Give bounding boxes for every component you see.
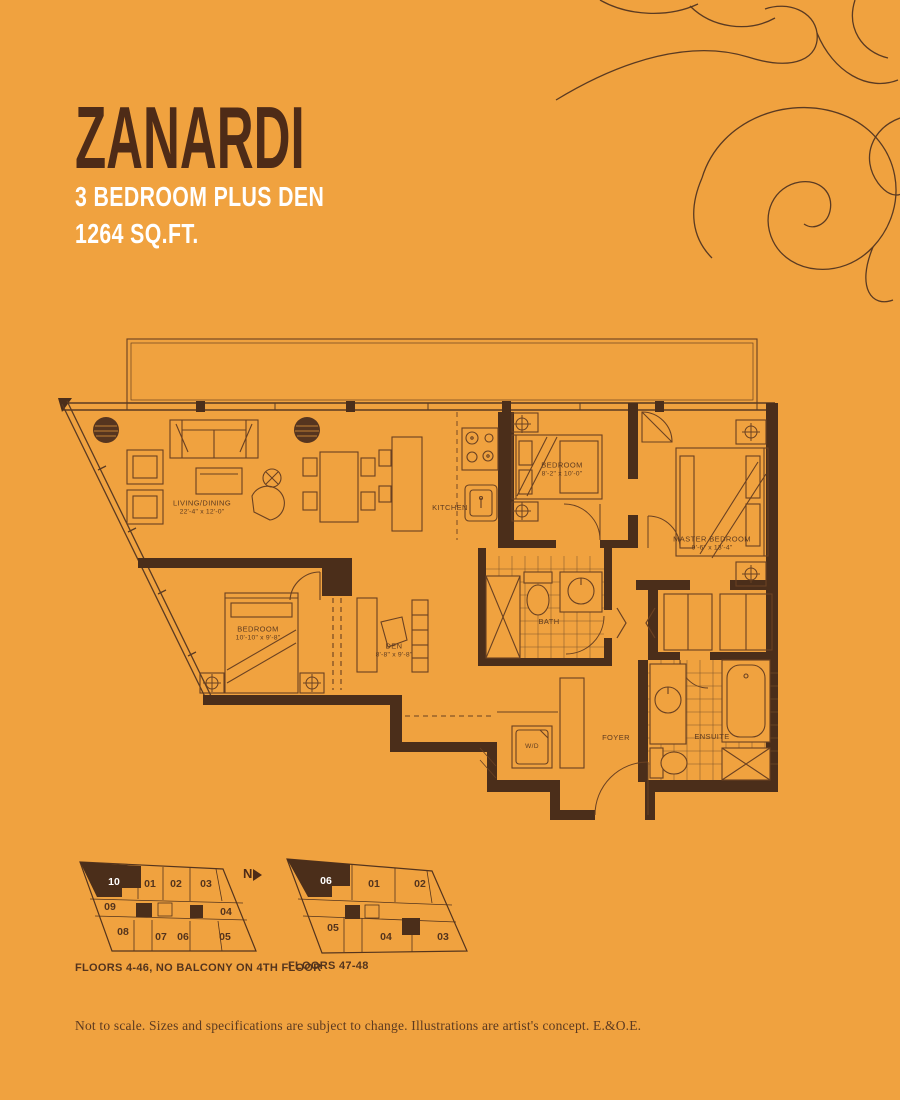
ornament-swirl-icon xyxy=(556,0,900,302)
room-label-bedroom2: BEDROOM8'-2" x 10'-0" xyxy=(541,461,583,480)
kitchen-island xyxy=(379,437,422,531)
room-label-foyer: FOYER xyxy=(602,733,630,743)
bath-sink-icon xyxy=(560,572,602,612)
keyplan1-unit-02: 02 xyxy=(170,878,182,890)
header: ZANARDI xyxy=(75,96,471,180)
closet-icon xyxy=(722,748,770,780)
keyplan1-unit-06: 06 xyxy=(177,931,189,943)
room-label-bath: BATH xyxy=(538,617,559,627)
room-label-master-bedroom: MASTER BEDROOM9'-6" x 13'-4" xyxy=(673,535,751,554)
keyplan1-unit-05: 05 xyxy=(219,931,231,943)
room-label-kitchen: KITCHEN xyxy=(432,503,468,513)
room-label-wd: W/D xyxy=(525,743,539,751)
keyplan-2-highlight xyxy=(287,859,350,897)
keyplan2-unit-05: 05 xyxy=(327,922,339,934)
keyplan2-unit-04: 04 xyxy=(380,931,392,943)
subtitle-sqft: 1264 SQ.FT. xyxy=(75,218,199,250)
keyplan2-unit-06: 06 xyxy=(320,875,332,887)
floorplan-page: ZANARDI 3 BEDROOM PLUS DEN 1264 SQ.FT. L… xyxy=(0,0,900,1100)
balcony xyxy=(127,339,757,403)
keyplan1-unit-08: 08 xyxy=(117,926,129,938)
kitchen-appliances xyxy=(457,412,498,540)
ensuite-room xyxy=(648,660,778,780)
accent-chair xyxy=(252,469,284,520)
disclaimer-text: Not to scale. Sizes and specifications a… xyxy=(75,1018,641,1034)
keyplan1-unit-10: 10 xyxy=(108,876,120,888)
keyplan1-caption: FLOORS 4-46, NO BALCONY ON 4TH FLOOR xyxy=(75,962,322,974)
keyplan2-unit-02: 02 xyxy=(414,878,426,890)
bath-room xyxy=(486,556,655,658)
north-indicator: N xyxy=(243,866,262,881)
keyplan2-caption: FLOORS 47-48 xyxy=(288,960,369,972)
keyplan2-unit-01: 01 xyxy=(368,878,380,890)
room-label-den: DEN8'-8" x 9'-8" xyxy=(376,642,413,661)
keyplan1-unit-09: 09 xyxy=(104,901,116,913)
room-label-bedroom3: BEDROOM10'-10" x 9'-8" xyxy=(236,625,281,644)
subtitle-bedrooms: 3 BEDROOM PLUS DEN xyxy=(75,181,324,213)
bath-door-arc xyxy=(566,616,604,654)
sofa xyxy=(170,420,258,458)
keyplan1-unit-01: 01 xyxy=(144,878,156,890)
floorplan-drawing xyxy=(58,339,778,820)
vanity xyxy=(650,664,686,744)
room-label-ensuite: ENSUITE xyxy=(694,732,729,742)
bathtub-icon xyxy=(722,660,770,742)
window-wall-diagonal xyxy=(62,401,212,701)
north-arrow-icon xyxy=(253,869,262,881)
stove-icon xyxy=(462,428,498,470)
dining-table xyxy=(303,452,375,522)
keyplan1-unit-03: 03 xyxy=(200,878,212,890)
keyplan1-unit-04: 04 xyxy=(220,906,232,918)
wardrobes xyxy=(664,594,772,650)
kitchen-sink-icon xyxy=(465,485,497,521)
room-label-living-dining: LIVING/DINING22'-4" x 12'-0" xyxy=(173,499,231,518)
keyplan2-unit-03: 03 xyxy=(437,931,449,943)
coffee-table xyxy=(196,468,242,494)
closet-icon xyxy=(486,576,520,658)
toilet-icon xyxy=(524,572,552,615)
keyplan1-unit-07: 07 xyxy=(155,931,167,943)
page-title: ZANARDI xyxy=(75,96,305,180)
toilet-icon xyxy=(650,748,687,778)
armchairs xyxy=(127,450,163,524)
